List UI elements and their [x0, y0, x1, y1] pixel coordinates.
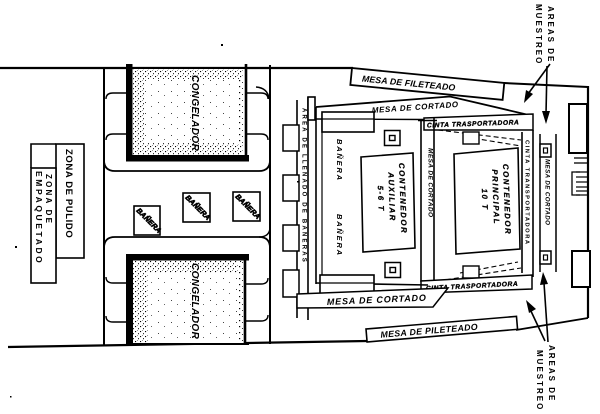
svg-text:ZONA DE PULIDO: ZONA DE PULIDO [63, 149, 74, 238]
svg-text:CONGELADOR: CONGELADOR [189, 263, 200, 340]
svg-text:AUXILIAR: AUXILIAR [386, 171, 397, 222]
svg-text:AREA DE LLENADO DE BAÑERAS: AREA DE LLENADO DE BAÑERAS [301, 108, 308, 264]
svg-text:ZONA DE: ZONA DE [44, 174, 53, 225]
svg-text:CONGELADOR: CONGELADOR [189, 75, 200, 152]
svg-text:MUESTREO: MUESTREO [534, 4, 543, 65]
svg-text:BAÑERA: BAÑERA [335, 139, 344, 182]
svg-text:AREAS DE: AREAS DE [546, 6, 555, 63]
svg-text:CINTA TRANSPORTADORA: CINTA TRANSPORTADORA [524, 140, 530, 246]
svg-text:MESA DE CORTADO: MESA DE CORTADO [427, 148, 434, 217]
svg-text:AREAS DE: AREAS DE [547, 345, 556, 402]
svg-text:EMPAQUETADO: EMPAQUETADO [34, 171, 44, 265]
svg-text:MESA DE CORTADO: MESA DE CORTADO [544, 159, 551, 225]
svg-text:10 T: 10 T [480, 189, 490, 211]
svg-text:5-6 T: 5-6 T [376, 186, 386, 213]
svg-text:BAÑERA: BAÑERA [335, 214, 344, 257]
svg-text:MUESTREO: MUESTREO [535, 350, 544, 411]
